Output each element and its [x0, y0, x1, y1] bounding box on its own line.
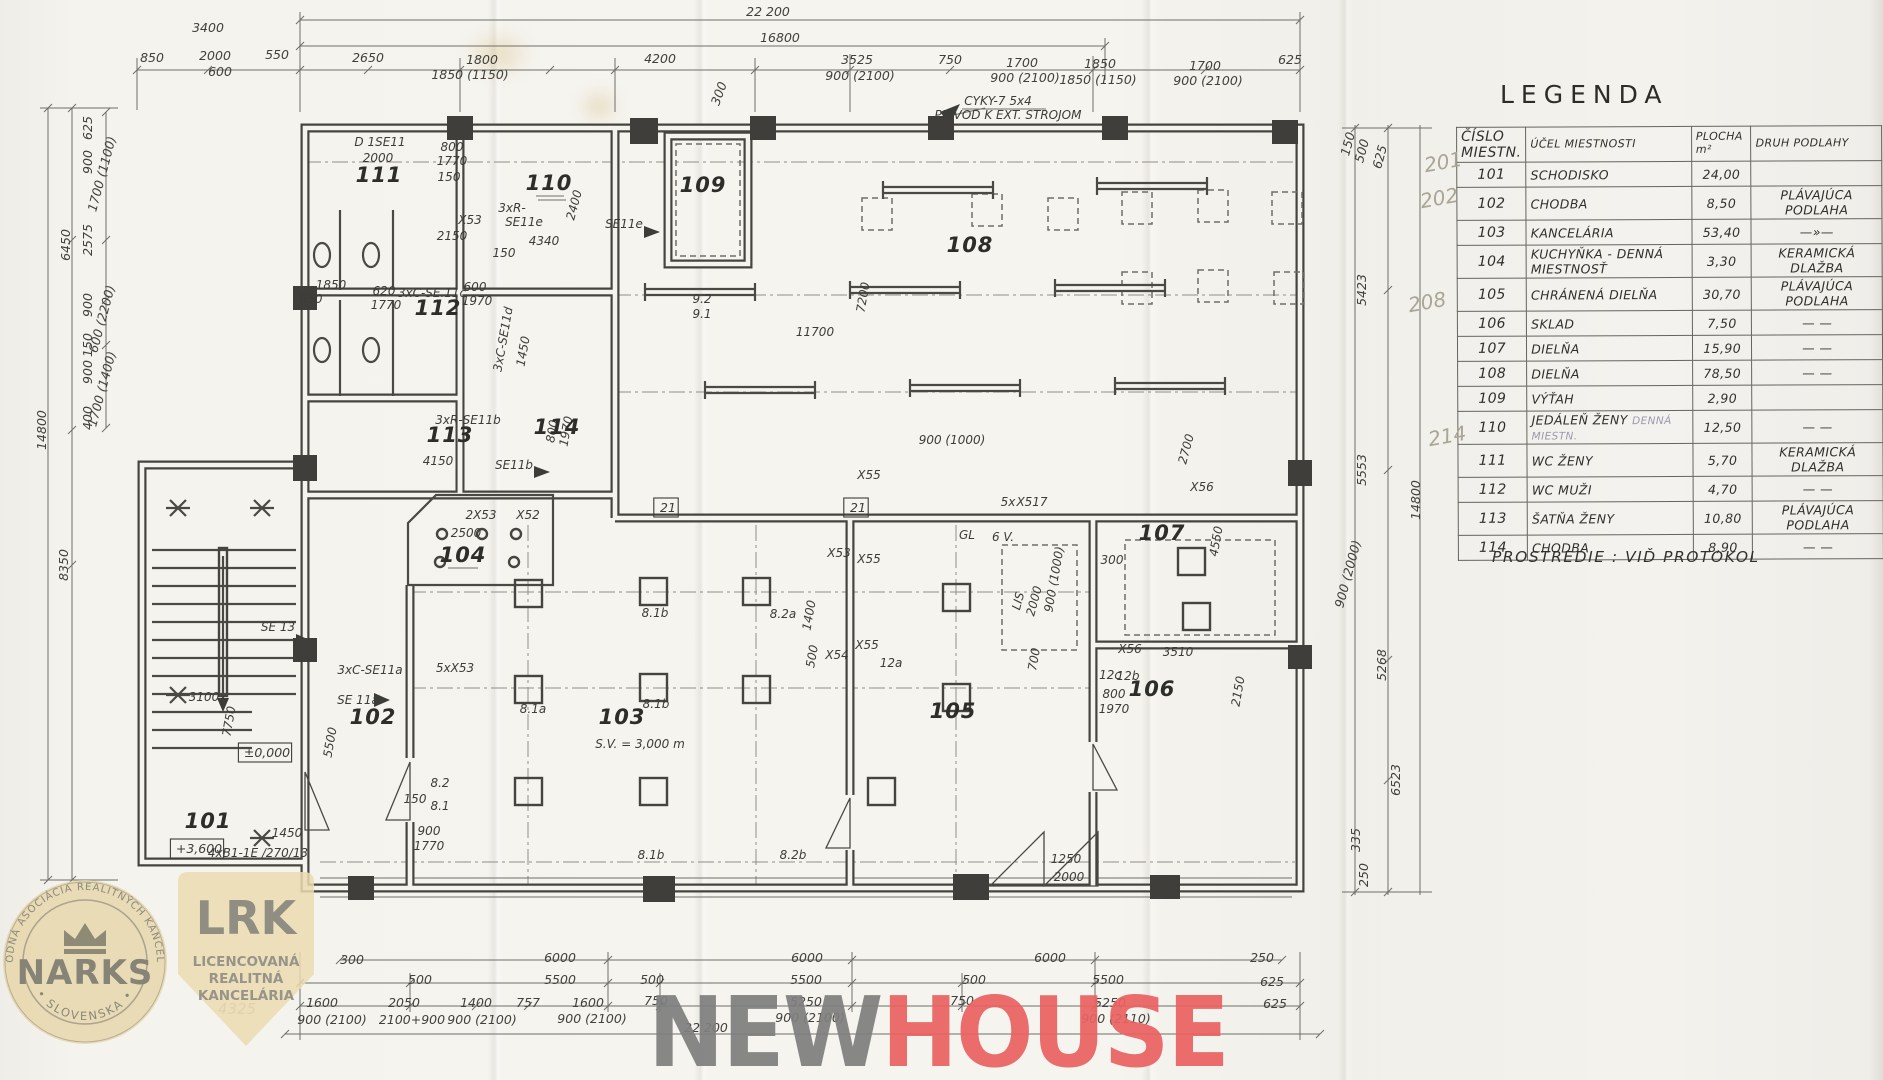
plan-label: X55: [854, 638, 879, 652]
plan-label: 3xC-SE11d: [490, 305, 515, 372]
room-area: 5,70: [1693, 443, 1753, 476]
plan-label: 2700: [1175, 432, 1197, 465]
plan-label: 900: [80, 293, 95, 317]
room-label: 109: [680, 173, 727, 197]
plan-label: X53: [826, 546, 851, 560]
room-area: 78,50: [1692, 360, 1752, 385]
legend-row: 110JEDÁLEŇ ŽENY DENNÁ MIESTN.12,50— —: [1458, 410, 1883, 445]
floor-plan-drawing: 22 2001680034008502000600550265018001850…: [0, 0, 1440, 1080]
room-area: 12,50: [1693, 410, 1753, 443]
plan-label: 1700: [1006, 55, 1038, 70]
plan-label: 1400: [800, 599, 819, 632]
plan-label: 550: [265, 47, 289, 62]
room-number: 109: [1458, 386, 1527, 411]
plan-label: 3510: [1163, 645, 1194, 659]
plan-label: 6000: [791, 950, 823, 965]
plan-label: SE11e: [505, 215, 543, 229]
plan-label: X54: [824, 648, 849, 662]
plan-label: 900: [80, 360, 95, 384]
room-number: 112: [1458, 477, 1527, 502]
plan-label: 8.2a: [770, 607, 796, 621]
plan-label: 8.2: [430, 776, 449, 790]
plan-label: 900 (2100): [447, 1012, 516, 1027]
plan-label: 5500: [321, 726, 340, 759]
equipment-dashed: [676, 144, 1304, 650]
room-floor-type: PLÁVAJÚCA PODLAHA: [1751, 186, 1882, 220]
plan-label: 1700: [1189, 58, 1221, 73]
plan-label: 8.2b: [780, 848, 807, 862]
plan-label: 900 (2100): [990, 70, 1059, 85]
room-label: 101: [185, 809, 232, 833]
legend-row: 106SKLAD7,50— —: [1457, 310, 1882, 337]
legend-row: 111WC ŽENY5,70KERAMICKÁ DLAŽBA: [1458, 443, 1883, 478]
walls: [142, 128, 1300, 888]
room-purpose: CHODBA: [1526, 187, 1692, 221]
plan-label: 6000: [1034, 950, 1066, 965]
plan-label: 500: [408, 972, 432, 987]
room-floor-type: PLÁVAJÚCA PODLAHA: [1752, 277, 1883, 311]
watermark-new: NEW: [648, 976, 882, 1080]
legend-row: 109VÝŤAH2,90: [1458, 385, 1883, 412]
room-label: 108: [947, 233, 994, 257]
room-label: 102: [350, 705, 397, 729]
room-label: 114: [534, 415, 581, 439]
plan-label: 150: [404, 792, 427, 806]
room-purpose: SCHODISKO: [1526, 162, 1692, 188]
plan-label: S.V. = 3,000 m: [595, 737, 685, 751]
room-area: 30,70: [1692, 277, 1752, 310]
plan-label: 1850 (1150): [431, 67, 508, 82]
plan-label: 300: [708, 80, 730, 108]
plan-label: 900 (2100): [825, 68, 894, 83]
legend-row: 102CHODBA8,50PLÁVAJÚCA PODLAHA: [1457, 186, 1882, 221]
plan-label: 500: [803, 643, 821, 668]
plan-label: 150: [80, 333, 95, 357]
plan-label: 6 V.: [992, 530, 1014, 544]
room-floor-type: [1751, 161, 1882, 187]
room-purpose: KANCELÁRIA: [1526, 220, 1692, 246]
room-area: 3,30: [1692, 244, 1752, 277]
plan-label: 400: [80, 406, 95, 430]
room-purpose: DIELŇA: [1527, 336, 1693, 362]
plan-label: 600: [464, 280, 487, 294]
crane-rail-symbols: [645, 177, 1225, 399]
plan-label: 300: [340, 952, 364, 967]
room-purpose: CHRÁNENÁ DIELŇA: [1526, 278, 1692, 312]
plan-label: GL: [959, 528, 975, 542]
plan-label: 6000: [544, 950, 576, 965]
plan-label: 300: [1101, 553, 1124, 567]
room-label: 106: [1129, 677, 1176, 701]
room-number: 104: [1457, 245, 1526, 278]
plan-label: 625: [1260, 974, 1284, 989]
plan-label: 1770: [371, 298, 402, 312]
plan-label: 4200: [644, 51, 676, 66]
plan-label: 6523: [1388, 764, 1403, 796]
plan-label: 14800: [34, 410, 49, 450]
plan-label: 9.1: [692, 307, 711, 321]
room-floor-type: — —: [1752, 335, 1883, 361]
legend-row: 107DIELŇA15,90— —: [1457, 335, 1882, 362]
room-floor-type: — —: [1753, 476, 1883, 502]
room-floor-type: — —: [1752, 410, 1883, 444]
plan-label: 2X53: [465, 508, 496, 522]
plan-label: 2575: [80, 224, 95, 256]
plan-label: 12c: [1099, 668, 1121, 682]
plan-label: 2000: [1023, 584, 1045, 617]
plan-label: 22 200: [746, 4, 790, 19]
room-floor-type: KERAMICKÁ DLAŽBA: [1752, 244, 1883, 278]
plan-label: 250: [1250, 950, 1274, 965]
room-area: 15,90: [1692, 335, 1752, 360]
plan-label: 9.2: [692, 292, 711, 306]
plan-label: 900 (2100): [557, 1011, 626, 1026]
room-number: 108: [1458, 361, 1527, 386]
room-purpose: KUCHYŇKA - DENNÁ MIESTNOSŤ: [1526, 245, 1692, 279]
room-number: 103: [1457, 220, 1526, 245]
plan-label: 620: [373, 284, 396, 298]
plan-label: 6450: [58, 229, 73, 261]
pen-margin-note: 202: [1418, 183, 1460, 213]
plan-label: 1400: [460, 995, 492, 1010]
room-label: 107: [1139, 521, 1186, 545]
plan-label: X517: [1015, 495, 1047, 509]
legend-header-floor: DRUH PODLAHY: [1751, 126, 1882, 162]
room-area: 24,00: [1691, 161, 1751, 186]
plan-label: 2100+900: [379, 1012, 445, 1027]
plan-label: X53: [457, 213, 482, 227]
plan-label: 8.1b: [643, 697, 670, 711]
plan-label: 5423: [1354, 274, 1369, 306]
legend-table: ČÍSLOMIESTN. ÚČEL MIESTNOSTI PLOCHAm² DR…: [1456, 125, 1883, 561]
plan-label: 8.1b: [638, 848, 665, 862]
plan-label: 150: [493, 246, 516, 260]
plan-label: 850: [140, 50, 164, 65]
legend-row: 103KANCELÁRIA53,40—»—: [1457, 219, 1882, 246]
room-floor-type: —»—: [1751, 219, 1882, 245]
room-number: 113: [1458, 502, 1527, 535]
watermark-house: HOUSE: [882, 976, 1228, 1080]
plan-label: 750: [938, 52, 962, 67]
room-label: 104: [440, 543, 487, 567]
room-purpose: SKLAD: [1527, 311, 1693, 337]
room-floor-type: [1752, 385, 1883, 411]
room-area: 2,90: [1692, 385, 1752, 410]
walls-inner: [142, 128, 1300, 888]
plan-label: SE11b: [495, 458, 533, 472]
room-floor-type: PLÁVAJÚCA PODLAHA: [1753, 501, 1883, 535]
plan-label: 335: [1348, 828, 1363, 852]
room-floor-type: — —: [1752, 360, 1883, 386]
plan-label: 900 (2100): [297, 1012, 366, 1027]
pen-annotation: DENNÁ MIESTN.: [1532, 415, 1672, 443]
room-number: 101: [1457, 162, 1526, 187]
plan-label: 2150: [437, 229, 468, 243]
plan-label: 3xR-: [498, 201, 525, 215]
legend-row: 105CHRÁNENÁ DIELŇA30,70PLÁVAJÚCA PODLAHA: [1457, 277, 1882, 312]
plan-label: 21: [660, 500, 676, 515]
plan-label: 250: [1356, 863, 1371, 887]
legend-header-purpose: ÚČEL MIESTNOSTI: [1526, 126, 1692, 162]
room-purpose: DIELŇA: [1527, 361, 1693, 387]
plan-label: 1970: [462, 294, 493, 308]
plan-label: 4xB1-1E /270/13: [208, 846, 308, 860]
room-purpose: WC MUŽI: [1527, 477, 1693, 503]
plan-label: 1850: [1084, 56, 1116, 71]
environment-note: PROSTREDIE : VIĎ PROTOKOL: [1492, 548, 1760, 566]
plan-label: 1600: [306, 995, 338, 1010]
plan-label: 2150: [1229, 675, 1248, 708]
plan-label: 625: [1263, 996, 1287, 1011]
plan-label: 900 (2000): [1331, 538, 1363, 609]
plan-label: 14800: [1408, 480, 1423, 520]
plan-label: 4325: [218, 1000, 256, 1018]
plan-label: 5500: [544, 972, 576, 987]
plan-label: 1850: [316, 278, 347, 292]
room-number: 107: [1457, 336, 1526, 361]
plan-label: 1450: [272, 826, 303, 840]
plan-label: 900 (1000): [919, 433, 986, 447]
room-label: 105: [930, 699, 977, 723]
plan-label: X56: [1189, 480, 1214, 494]
room-label: 112: [415, 296, 462, 320]
plan-label: 700: [1025, 646, 1043, 671]
plan-label: 2050: [388, 995, 420, 1010]
legend-header-row: ČÍSLOMIESTN. ÚČEL MIESTNOSTI PLOCHAm² DR…: [1457, 126, 1882, 163]
plan-label: 625: [80, 116, 95, 140]
plan-label: 1450: [514, 335, 533, 368]
plan-label: 4550: [1207, 525, 1226, 558]
legend-row: 104KUCHYŇKA - DENNÁ MIESTNOSŤ3,30KERAMIC…: [1457, 244, 1882, 279]
plan-label: 7200: [854, 281, 873, 314]
plan-label: 5553: [1354, 454, 1369, 486]
plan-label: 16800: [760, 30, 800, 45]
room-floor-type: — —: [1753, 534, 1883, 560]
annotation-arrows: [296, 104, 960, 707]
room-label: 113: [427, 423, 474, 447]
plan-label: 2650: [352, 50, 384, 65]
plan-label: 5268: [1374, 649, 1389, 681]
plan-label: 5xX53: [436, 661, 474, 675]
plan-label: X55: [856, 552, 881, 566]
newhouse-watermark: NEWHOUSE: [648, 984, 1228, 1080]
plan-label: 900: [80, 150, 95, 174]
plan-label: 1850 (1150): [1059, 72, 1136, 87]
plan-label: 1970: [1099, 702, 1130, 716]
plan-label: 800: [1103, 687, 1126, 701]
room-number: 102: [1457, 187, 1526, 220]
room-area: 7,50: [1692, 310, 1752, 335]
plan-label: 8.1: [430, 799, 449, 813]
plan-label: 625: [1278, 52, 1302, 67]
room-label: 103: [599, 705, 646, 729]
room-purpose: VÝŤAH: [1527, 386, 1693, 412]
plan-label: 21: [850, 500, 866, 515]
room-purpose: JEDÁLEŇ ŽENY DENNÁ MIESTN.: [1527, 411, 1693, 445]
plan-label: 2500: [451, 526, 482, 540]
plan-label: 800: [441, 140, 464, 154]
door-triangles: [305, 744, 1117, 886]
plan-label: 900 (2100): [1173, 73, 1242, 88]
pen-margin-note: 208: [1406, 287, 1448, 317]
scanned-floor-plan-sheet: 22 2001680034008502000600550265018001850…: [0, 0, 1883, 1080]
room-floor-type: KERAMICKÁ DLAŽBA: [1752, 443, 1883, 477]
plan-label: 2000: [199, 48, 231, 63]
legend-row: 112WC MUŽI4,70— —: [1458, 476, 1883, 503]
plan-label: 900: [418, 824, 441, 838]
plan-label: 150: [438, 170, 461, 184]
plan-label: 5x: [1001, 495, 1017, 509]
plan-label: ±0,000: [244, 745, 290, 760]
plan-label: 4340: [529, 234, 560, 248]
plan-label: 1770: [414, 839, 445, 853]
plan-label: X56: [1117, 642, 1142, 656]
legend-row: 101SCHODISKO24,00: [1457, 161, 1882, 188]
plan-label: 3400: [192, 20, 224, 35]
room-area: 8,50: [1692, 186, 1752, 219]
plan-label: 3525: [841, 52, 873, 67]
plan-label: 625: [1369, 143, 1390, 170]
plan-label: 600: [208, 64, 232, 79]
plan-label: 1770: [437, 154, 468, 168]
plan-label: 757: [516, 995, 540, 1010]
room-label: 111: [356, 163, 403, 187]
room-purpose: WC ŽENY: [1527, 444, 1693, 478]
room-label: 110: [526, 171, 573, 195]
legend-row: 108DIELŇA78,50— —: [1458, 360, 1883, 387]
plan-label: 3100: [189, 690, 220, 704]
plan-label: 12a: [880, 656, 903, 670]
plan-label: X52: [515, 508, 540, 522]
legend-row: 113ŠATŇA ŽENY10,80PLÁVAJÚCA PODLAHA: [1458, 501, 1883, 536]
room-area: 4,70: [1693, 476, 1753, 501]
room-floor-type: — —: [1752, 310, 1883, 336]
plan-label: 8.1b: [642, 606, 669, 620]
legend-header-area: PLOCHAm²: [1691, 126, 1751, 161]
plan-label: D 1SE11: [354, 135, 405, 149]
room-area: 53,40: [1692, 219, 1752, 244]
legend-title: LEGENDA: [1500, 80, 1669, 109]
plan-label: 900 (1000): [1041, 545, 1066, 613]
room-number: 105: [1457, 278, 1526, 311]
plan-label: 11700: [796, 325, 835, 339]
plan-label: PRÍVOD K EXT. STROJOM: [935, 107, 1083, 122]
room-number: 110: [1458, 411, 1527, 444]
room-number: 111: [1458, 444, 1527, 477]
legend-header-number: ČÍSLOMIESTN.: [1457, 127, 1526, 162]
room-number: 106: [1457, 311, 1526, 336]
plan-label: 4150: [423, 454, 454, 468]
plan-label: 1800: [466, 52, 498, 67]
plan-label: 1250: [1051, 852, 1082, 866]
plan-label: 850: [300, 292, 323, 306]
plan-label: 3xC-SE11a: [337, 663, 402, 677]
plan-label: 2000: [1054, 870, 1085, 884]
plan-label: X55: [856, 468, 881, 482]
plan-label: SE 13: [261, 620, 295, 634]
plan-label: 1600: [572, 995, 604, 1010]
room-purpose: ŠATŇA ŽENY: [1527, 502, 1693, 536]
plan-label: 8.1a: [520, 702, 546, 716]
plan-label: CYKY-7 5x4: [964, 94, 1031, 108]
room-area: 10,80: [1693, 501, 1753, 534]
plan-label: SE11e: [605, 217, 643, 231]
plan-label: 8350: [56, 549, 71, 581]
